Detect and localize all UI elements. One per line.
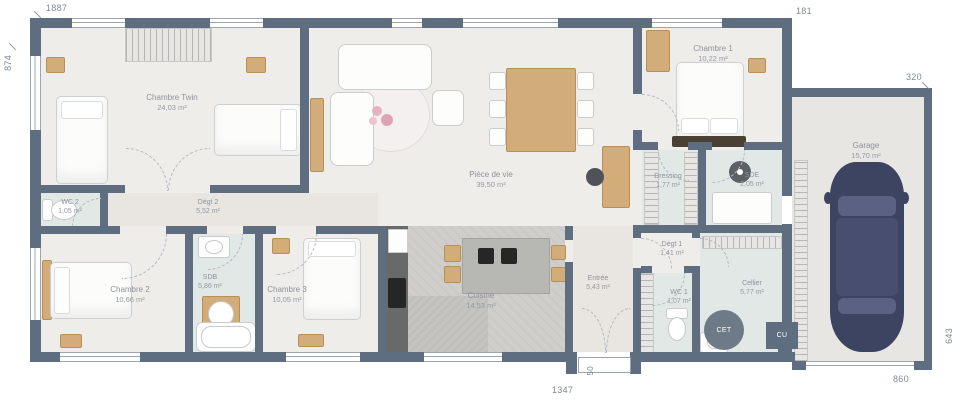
dimension-entry-step: 50 — [586, 366, 595, 376]
window-icon — [286, 352, 360, 362]
pillow-icon — [710, 118, 738, 134]
room-label-wc1: WC 1 1,07 m² — [667, 288, 691, 306]
room-label-chambre-twin: Chambre Twin 24,03 m² — [146, 93, 197, 113]
wall-right — [782, 18, 792, 362]
window-icon — [60, 352, 140, 362]
window-icon — [72, 18, 125, 28]
sofa-icon — [338, 44, 432, 90]
cet-label: CET — [717, 327, 732, 334]
floor-plan: CET CU Chambre Twin 24,03 m² WC 2 1,05 m… — [0, 0, 960, 400]
toilet-icon — [668, 317, 686, 341]
car-roof-icon — [836, 218, 898, 296]
wardrobe-icon — [646, 30, 670, 72]
pillow-icon — [54, 267, 70, 314]
flower-icon — [372, 106, 382, 116]
crate-icon — [444, 266, 461, 283]
wall-interior — [41, 226, 120, 234]
room-label-sdb: SDB 5,86 m² — [198, 273, 222, 291]
wall-interior — [378, 226, 386, 352]
wall-interior — [633, 233, 641, 238]
room-label-dressing: Dressing 1,77 m² — [654, 172, 682, 190]
flower-icon — [381, 114, 393, 126]
wall-interior — [633, 268, 641, 352]
room-label-sde: SDE 2,05 m² — [740, 171, 764, 189]
kitchen-island-icon — [462, 238, 550, 294]
dimension-bottom-right: 860 — [893, 374, 909, 384]
car-mirror-icon — [824, 192, 832, 204]
dimension-bottom: 1347 — [552, 385, 573, 395]
console-icon — [310, 98, 324, 172]
car-mirror-icon — [901, 192, 909, 204]
armchair-icon — [432, 90, 464, 126]
wall-interior — [692, 266, 700, 352]
window-icon — [463, 18, 558, 28]
room-label-chambre3: Chambre 3 10,05 m² — [267, 285, 307, 305]
wall-interior — [41, 185, 125, 193]
wall-interior — [633, 28, 642, 94]
wall-interior — [565, 262, 573, 352]
chair-icon — [489, 72, 506, 90]
window-icon — [210, 18, 263, 28]
chair-icon — [577, 128, 594, 146]
service-door-opening — [782, 196, 792, 224]
window-icon — [652, 18, 722, 28]
dimension-tick — [34, 11, 41, 18]
window-icon — [30, 248, 41, 320]
window-icon — [392, 18, 422, 28]
cooktop-icon — [478, 248, 494, 264]
window-icon — [30, 56, 41, 130]
garage-door-icon — [806, 361, 914, 370]
wall-interior — [185, 234, 193, 352]
wall-interior — [210, 185, 309, 193]
flower-icon — [369, 117, 377, 125]
nightstand-icon — [46, 57, 65, 73]
wardrobe-icon — [125, 28, 212, 62]
porch-wall — [630, 352, 641, 374]
chair-icon — [489, 128, 506, 146]
wall-interior — [633, 130, 642, 142]
bench-icon — [60, 334, 82, 348]
dimension-top-right: 181 — [796, 6, 812, 16]
dimension-top: 1887 — [46, 3, 67, 13]
room-label-degt2: Dégt 2 5,52 m² — [196, 198, 220, 216]
room-label-cellier: Cellier 5,77 m² — [740, 279, 764, 297]
shower-icon — [712, 192, 772, 224]
water-heater-cet: CET — [704, 310, 744, 350]
car-windshield-icon — [838, 196, 896, 216]
room-label-chambre1: Chambre 1 10,22 m² — [693, 44, 733, 64]
wall-interior — [300, 28, 309, 185]
wall-interior — [316, 226, 386, 234]
chair-icon — [489, 100, 506, 118]
nightstand-icon — [246, 57, 266, 73]
dimension-tick — [9, 43, 16, 50]
garage-wall-top — [792, 88, 932, 97]
bathtub-basin-icon — [201, 326, 251, 348]
wall-interior — [692, 233, 700, 238]
car-rear-window-icon — [838, 298, 896, 314]
wall-interior — [166, 226, 207, 234]
chair-icon — [577, 72, 594, 90]
wall-bottom-right — [630, 352, 795, 362]
porch-wall — [566, 352, 577, 374]
stool-icon — [551, 267, 566, 282]
dimension-left: 874 — [3, 55, 13, 71]
garage-wall-right — [924, 88, 932, 370]
stool-icon — [551, 245, 566, 260]
room-label-degt1: Dégt 1 1,41 m² — [660, 240, 684, 258]
crate-icon — [444, 245, 461, 262]
dimension-garage-top: 320 — [906, 72, 922, 82]
cu-unit: CU — [766, 322, 798, 349]
pillow-icon — [280, 109, 297, 151]
room-label-cuisine: Cuisine 14,53 m² — [466, 291, 496, 311]
room-label-chambre2: Chambre 2 10,66 m² — [110, 285, 150, 305]
dimension-right: 643 — [944, 328, 954, 344]
dining-table-icon — [506, 68, 576, 152]
desk-icon — [602, 146, 630, 208]
wall-interior — [698, 150, 706, 225]
wall-interior — [255, 234, 263, 352]
room-label-piece-de-vie: Pièce de vie 39,50 m² — [469, 170, 513, 190]
window-icon — [424, 352, 502, 362]
bench-icon — [298, 334, 324, 347]
oven-icon — [388, 278, 406, 308]
desk-chair-icon — [586, 168, 604, 186]
cu-label: CU — [777, 332, 788, 339]
pillow-icon — [61, 101, 103, 119]
nightstand-icon — [748, 58, 766, 73]
cooktop-icon — [501, 248, 517, 264]
room-label-entree: Entrée 5,43 m² — [586, 274, 610, 292]
wall-interior — [744, 142, 782, 150]
pillow-icon — [681, 118, 709, 134]
cu-stem — [778, 349, 786, 361]
wall-interior — [633, 225, 782, 233]
wall-interior — [243, 226, 276, 234]
room-label-garage: Garage 15,70 m² — [851, 141, 881, 161]
wall-interior — [688, 142, 712, 150]
wall-interior — [565, 226, 573, 240]
room-label-wc2: WC 2 1,05 m² — [58, 198, 82, 216]
chair-icon — [577, 100, 594, 118]
fridge-icon — [388, 229, 408, 253]
wall-interior — [633, 142, 658, 150]
sofa-chaise-icon — [330, 92, 374, 166]
